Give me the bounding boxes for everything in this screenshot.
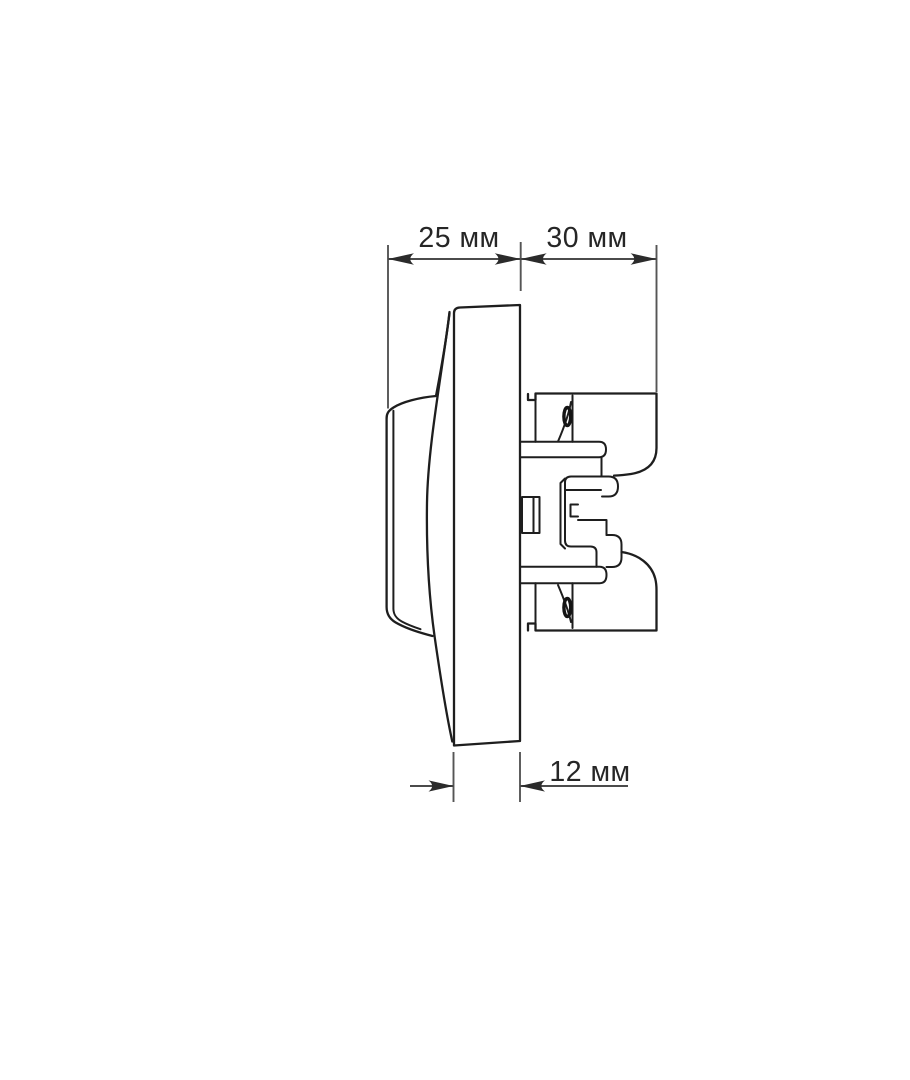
bracket-notch: [571, 505, 579, 517]
dimension-plate-thickness: 12 мм: [410, 752, 631, 802]
dimension-label-rear-depth: 30 мм: [546, 222, 627, 254]
rocker-front-face-inner: [393, 411, 420, 629]
arrowhead-left-25: [388, 253, 414, 265]
bracket-inner-step: [578, 520, 607, 535]
drawing-canvas: 25 мм 30 мм 12 мм: [0, 0, 910, 1080]
dimension-label-plate-thickness: 12 мм: [549, 756, 630, 788]
arrowhead-right-12: [429, 780, 454, 791]
dimension-rear-depth: 30 мм: [521, 222, 657, 392]
arrowhead-left-12: [520, 780, 545, 791]
switch-side-view: [387, 305, 657, 746]
mounting-yoke-upper: [520, 442, 606, 457]
arrowhead-left-30: [521, 253, 547, 265]
frame-tab: [522, 497, 540, 533]
arrowhead-right-25: [495, 253, 521, 265]
arrowhead-right-30: [631, 253, 657, 265]
dimension-label-front-depth: 25 мм: [418, 222, 499, 254]
technical-drawing-svg: 25 мм 30 мм 12 мм: [0, 0, 910, 1080]
rear-housing-lower: [528, 552, 657, 631]
front-plate: [454, 305, 520, 746]
screw-boss-lower: [607, 535, 622, 567]
screw-boss-upper: [602, 477, 618, 497]
mounting-yoke-lower: [520, 567, 607, 583]
rocker-sweep-edge: [427, 314, 452, 742]
rear-housing-upper: [528, 394, 657, 476]
